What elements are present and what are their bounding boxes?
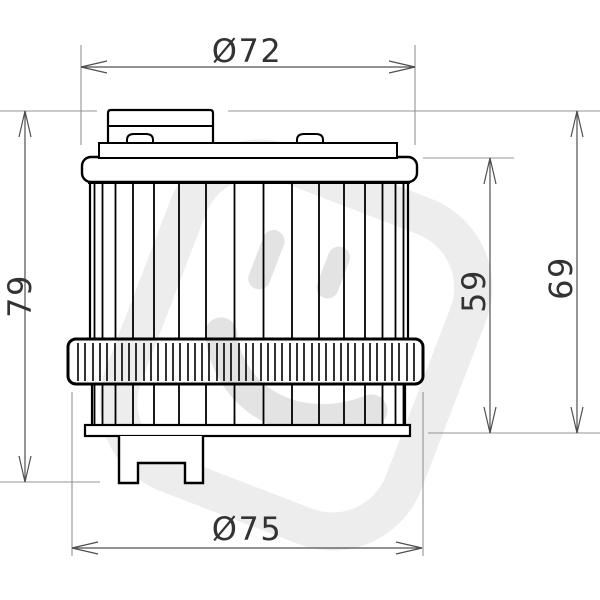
dimension-labels: Ø72 79 59 69 Ø75 <box>1 32 580 548</box>
knurled-nut <box>68 339 423 384</box>
oil-filter-technical-drawing: Ø72 79 59 69 Ø75 <box>0 0 600 600</box>
label-top-diameter: Ø72 <box>212 32 282 70</box>
technical-drawing-page: Ø72 79 59 69 Ø75 <box>0 0 600 600</box>
label-overall-height: 79 <box>1 274 39 318</box>
top-cap <box>82 157 417 182</box>
smiley-logo-watermark <box>96 136 495 553</box>
top-plate <box>99 143 397 158</box>
label-housing-height: 69 <box>542 256 580 300</box>
filter-outline <box>68 110 423 483</box>
label-element-height: 59 <box>455 269 493 313</box>
watermark-rounded-square <box>96 136 495 553</box>
label-nut-diameter: Ø75 <box>212 510 282 548</box>
watermark-left-eye <box>245 227 288 293</box>
bottom-plate <box>85 425 410 436</box>
